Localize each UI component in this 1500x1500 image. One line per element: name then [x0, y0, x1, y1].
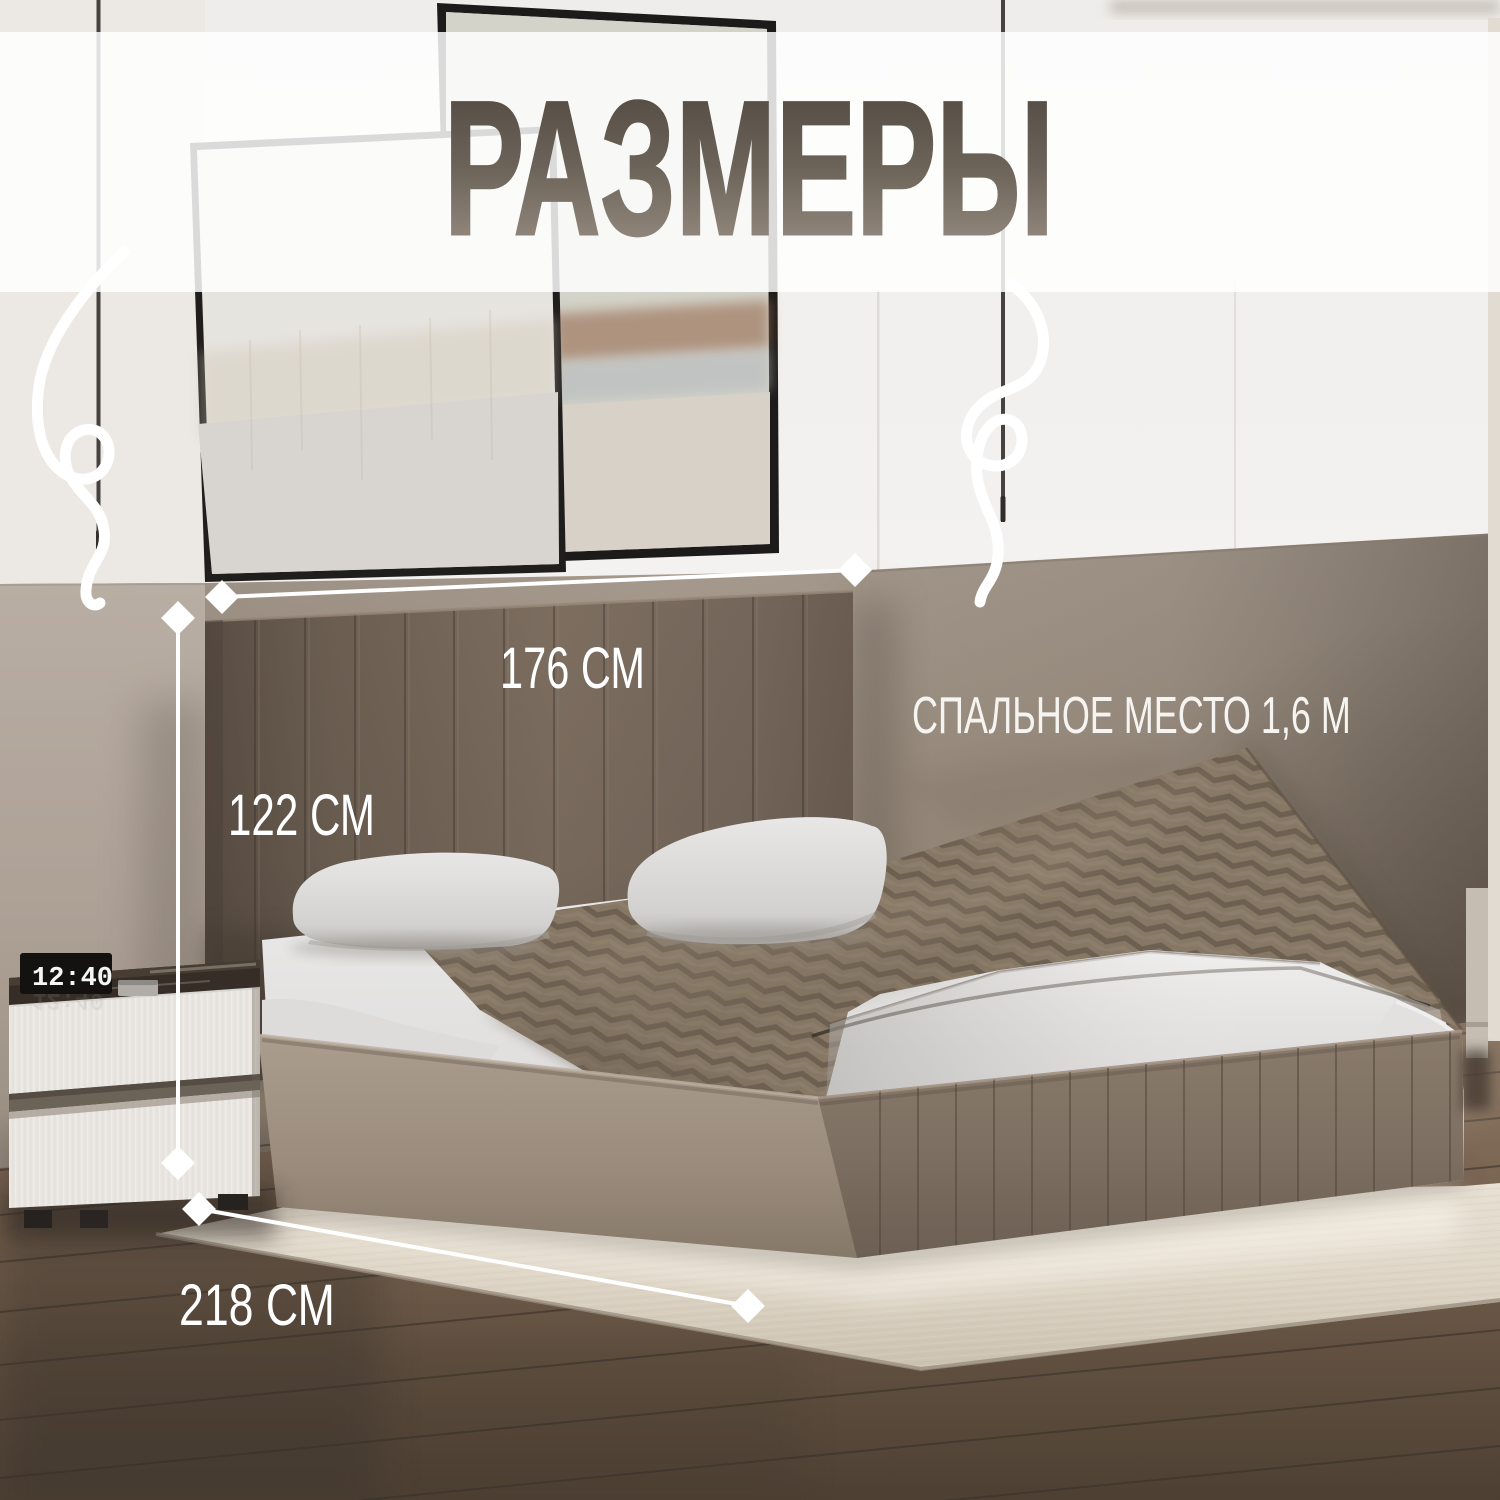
- svg-text:12:40: 12:40: [32, 986, 104, 1013]
- svg-text:176 СМ: 176 СМ: [500, 635, 645, 701]
- svg-text:РАЗМЕРЫ: РАЗМЕРЫ: [444, 62, 1054, 275]
- svg-text:СПАЛЬНОЕ МЕСТО 1,6 М: СПАЛЬНОЕ МЕСТО 1,6 М: [912, 688, 1351, 745]
- svg-text:218 СМ: 218 СМ: [179, 1272, 335, 1337]
- svg-text:122 СМ: 122 СМ: [228, 782, 375, 847]
